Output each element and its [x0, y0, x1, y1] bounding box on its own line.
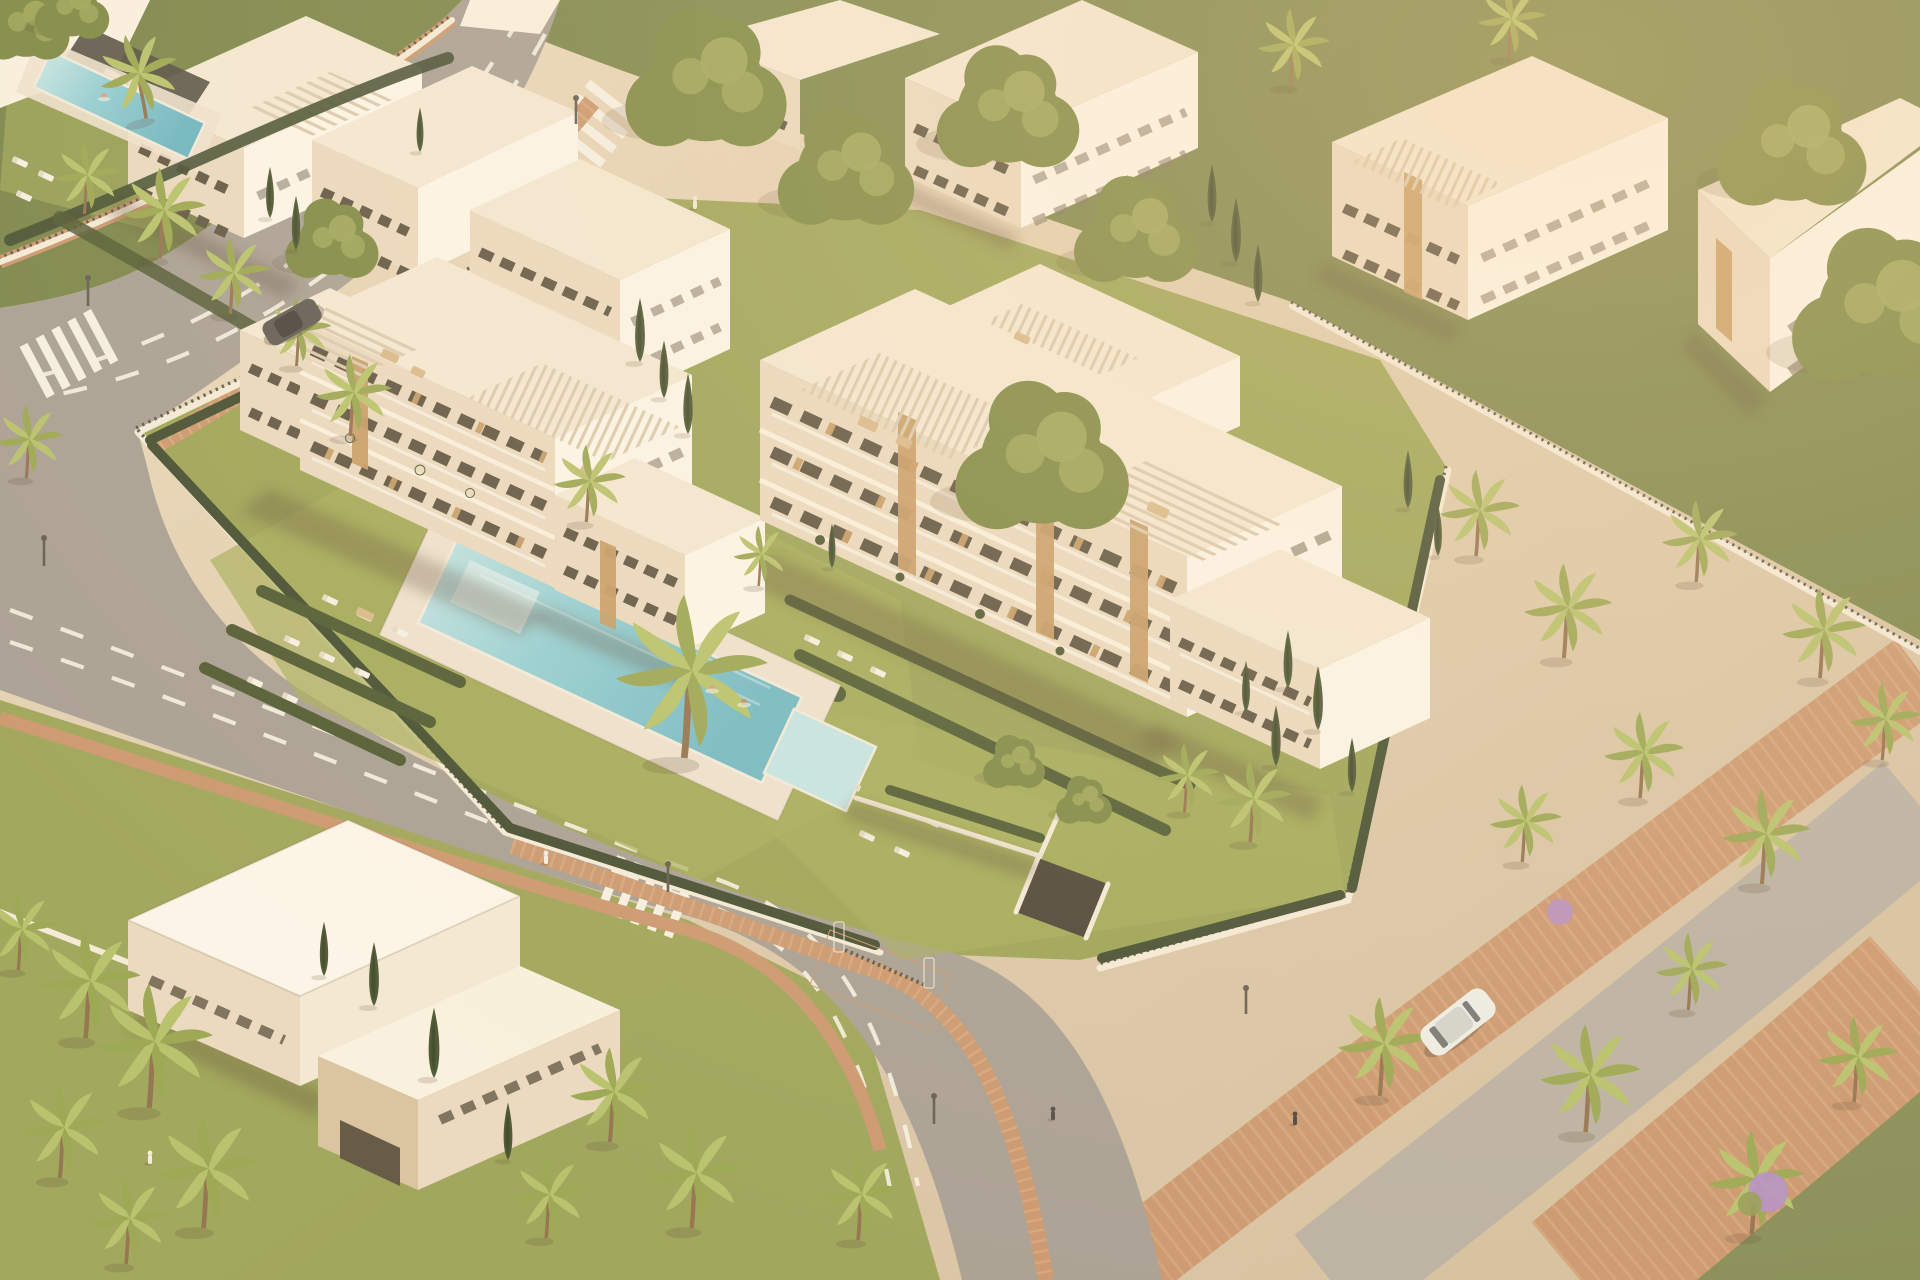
warm-tint: [0, 0, 1920, 1280]
aerial-render: [0, 0, 1920, 1280]
render-canvas: [0, 0, 1920, 1280]
